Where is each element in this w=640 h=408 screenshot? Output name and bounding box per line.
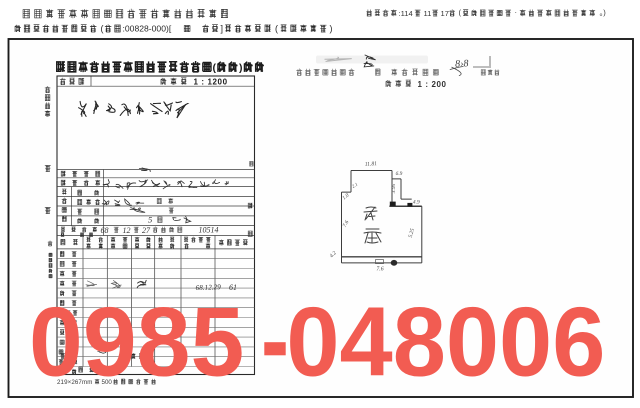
svg-text::114: :114 [399,9,413,18]
svg-text:68: 68 [101,226,109,235]
svg-text:1 : 1200: 1 : 1200 [194,78,228,87]
svg-text:·: · [515,8,518,17]
svg-text:3.95: 3.95 [391,183,397,194]
svg-text:10514: 10514 [199,226,219,235]
svg-text:。): 。) [600,8,607,17]
svg-text:]: ] [221,24,224,34]
svg-text:11: 11 [424,9,432,18]
svg-text:7.6: 7.6 [376,267,383,273]
svg-text:(: ( [275,24,278,34]
svg-text:8›8: 8›8 [455,58,469,70]
svg-text:4.9: 4.9 [413,199,420,205]
svg-text:): ) [330,24,333,34]
svg-text:1 : 200: 1 : 200 [418,80,447,89]
svg-text:27: 27 [142,226,151,235]
svg-text:): ) [239,62,243,74]
svg-text:11.81: 11.81 [365,161,378,168]
svg-text:0985: 0985 [29,287,244,397]
svg-text:048006: 048006 [286,287,605,397]
svg-text:6.9: 6.9 [396,171,403,177]
svg-text:17: 17 [441,9,449,18]
svg-text:(: ( [213,62,217,74]
svg-text:12: 12 [123,226,131,235]
svg-text::00828-000)[: :00828-000)[ [123,24,172,34]
svg-text:5: 5 [148,215,152,225]
svg-text:(: ( [101,24,104,34]
